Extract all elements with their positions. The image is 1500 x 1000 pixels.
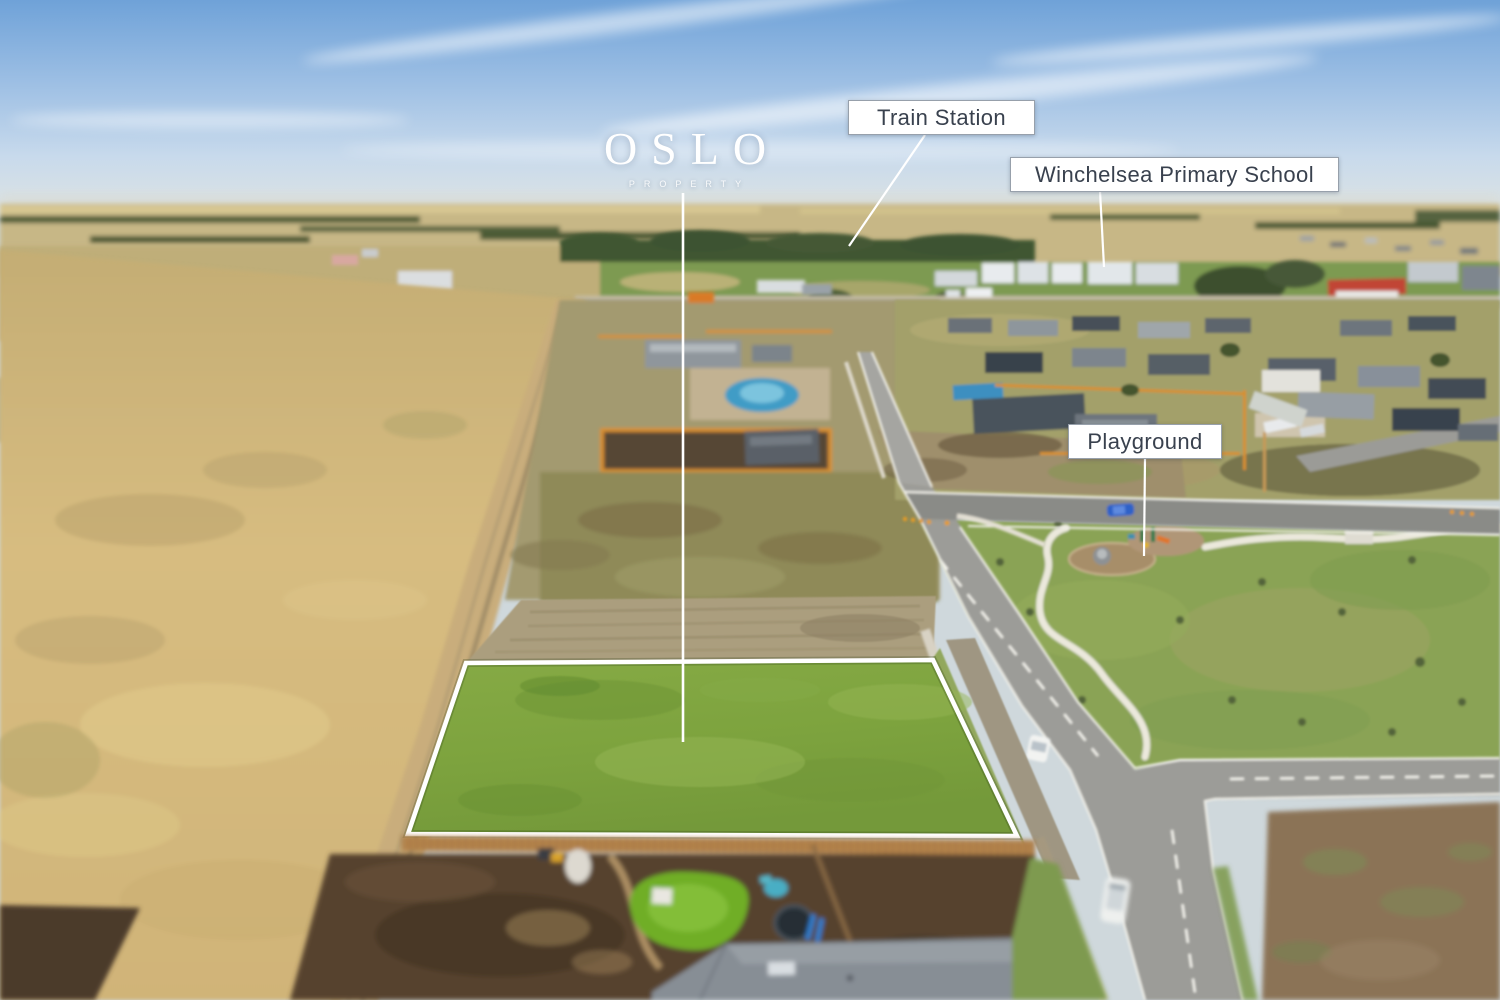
machinery [551, 853, 563, 862]
brand-logo-text: OSLO [575, 126, 795, 172]
callout-school-text: Winchelsea Primary School [1035, 162, 1314, 188]
house-roof [744, 429, 819, 466]
estate-middle [505, 280, 940, 602]
garden-dome [565, 849, 591, 883]
callout-playground: Playground [1068, 424, 1222, 459]
aerial-photo: OSLO PROPERTY Train Station Winchelsea P… [0, 0, 1500, 1000]
red-roof-building [1328, 278, 1406, 297]
callout-playground-text: Playground [1087, 429, 1202, 455]
suburb-right [878, 300, 1500, 500]
brand-logo-subtext: PROPERTY [575, 179, 795, 189]
vacant-lot-north [466, 596, 936, 663]
callout-winchelsea-primary-school: Winchelsea Primary School [1010, 157, 1339, 192]
playground-leader-line [1144, 458, 1145, 556]
brand-logo: OSLO PROPERTY [575, 126, 795, 189]
callout-train-station-text: Train Station [877, 105, 1006, 131]
callout-train-station: Train Station [848, 100, 1035, 135]
highlighted-lot [408, 660, 1017, 836]
car-blue [1107, 503, 1135, 517]
car-white [1026, 734, 1052, 763]
